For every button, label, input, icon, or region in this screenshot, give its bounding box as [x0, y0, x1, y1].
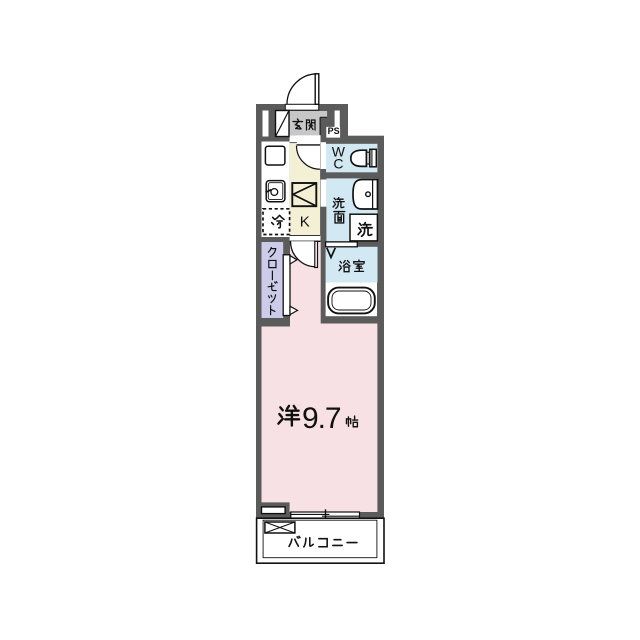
svg-text:PS: PS [328, 126, 340, 136]
svg-text:9.7: 9.7 [302, 402, 342, 435]
svg-text:C: C [333, 156, 343, 172]
svg-text:K: K [300, 214, 310, 231]
